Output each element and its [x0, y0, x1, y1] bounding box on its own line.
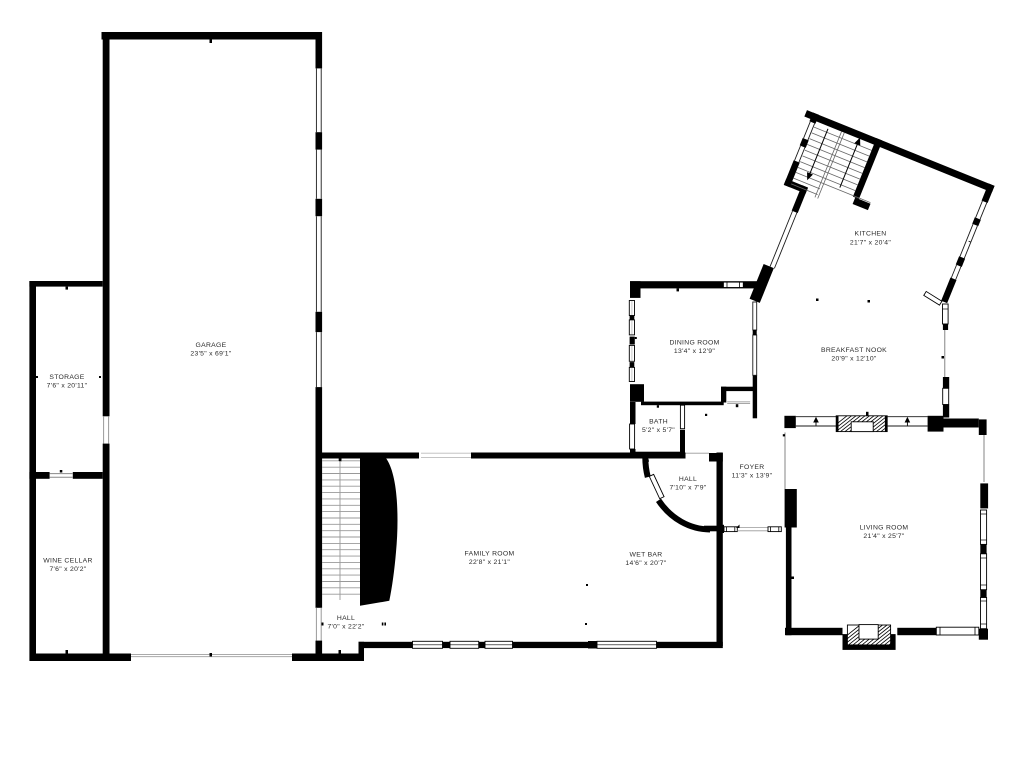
svg-text:11'3" x 13'9": 11'3" x 13'9": [732, 473, 773, 480]
svg-text:21'7" x 20'4": 21'7" x 20'4": [850, 240, 891, 247]
svg-text:FAMILY ROOM: FAMILY ROOM: [465, 551, 515, 558]
svg-text:5'2" x 5'7": 5'2" x 5'7": [642, 427, 675, 434]
svg-text:22'8" x 21'1": 22'8" x 21'1": [469, 559, 510, 566]
svg-text:BREAKFAST NOOK: BREAKFAST NOOK: [821, 347, 887, 354]
svg-text:HALL: HALL: [679, 476, 697, 483]
svg-text:7'10" x 7'9": 7'10" x 7'9": [669, 485, 706, 492]
svg-text:7'6" x 20'11": 7'6" x 20'11": [47, 383, 88, 390]
svg-text:LIVING ROOM: LIVING ROOM: [860, 525, 909, 532]
svg-text:FOYER: FOYER: [740, 464, 765, 471]
svg-text:BATH: BATH: [649, 419, 668, 426]
svg-text:13'4" x 12'9": 13'4" x 12'9": [674, 348, 715, 355]
svg-text:HALL: HALL: [337, 615, 355, 622]
svg-text:GARAGE: GARAGE: [196, 342, 227, 349]
svg-text:7'6" x 20'2": 7'6" x 20'2": [49, 566, 86, 573]
svg-text:20'9" x 12'10": 20'9" x 12'10": [831, 356, 877, 363]
svg-text:WET BAR: WET BAR: [630, 552, 663, 559]
svg-text:KITCHEN: KITCHEN: [855, 231, 887, 238]
svg-text:14'6" x 20'7": 14'6" x 20'7": [625, 560, 666, 567]
svg-text:WINE CELLAR: WINE CELLAR: [43, 558, 92, 565]
svg-text:STORAGE: STORAGE: [49, 374, 84, 381]
svg-text:DINING ROOM: DINING ROOM: [669, 340, 719, 347]
svg-text:7'0" x 22'2": 7'0" x 22'2": [327, 624, 364, 631]
svg-text:23'5" x 69'1": 23'5" x 69'1": [190, 351, 231, 358]
svg-text:21'4" x 25'7": 21'4" x 25'7": [863, 533, 904, 540]
